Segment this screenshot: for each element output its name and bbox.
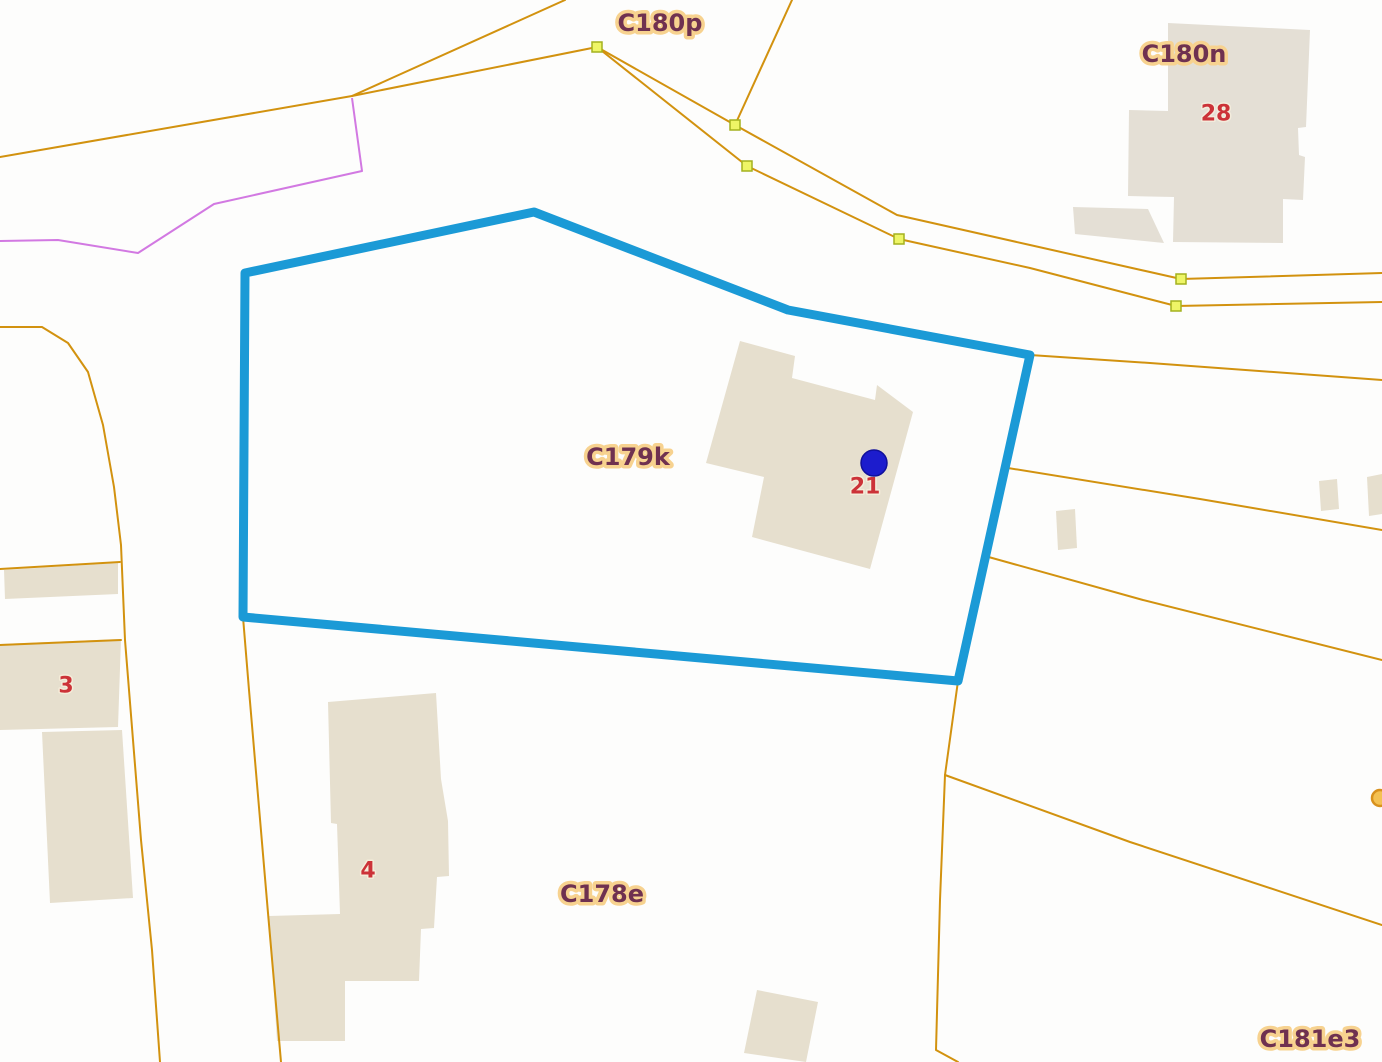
vertex-marker xyxy=(894,234,904,244)
building-footprint xyxy=(1319,479,1339,511)
parcel-label: C180p xyxy=(618,9,703,37)
selected-point-marker[interactable] xyxy=(861,450,887,476)
parcel-label: C181e3 xyxy=(1260,1025,1361,1053)
vertex-marker xyxy=(742,161,752,171)
building-number: 4 xyxy=(360,859,375,884)
building-number: 3 xyxy=(58,674,73,699)
vertex-marker xyxy=(1171,301,1181,311)
parcel-label: C178e xyxy=(560,880,644,908)
cadastral-map-viewport[interactable]: C180pC180nC179kC178eC181e3282134 xyxy=(0,0,1382,1062)
cadastral-map[interactable]: C180pC180nC179kC178eC181e3282134 xyxy=(0,0,1382,1062)
vertex-marker xyxy=(592,42,602,52)
vertex-marker xyxy=(1176,274,1186,284)
parcel-label: C179k xyxy=(586,443,671,471)
boundary-point-marker xyxy=(1372,790,1382,806)
building-number: 21 xyxy=(850,475,881,500)
parcel-label: C180n xyxy=(1142,40,1227,68)
building-footprint xyxy=(42,730,133,903)
vertex-marker xyxy=(730,120,740,130)
building-footprint xyxy=(1367,474,1382,516)
building-footprint xyxy=(744,990,818,1062)
building-footprint xyxy=(1056,509,1077,550)
building-number: 28 xyxy=(1201,102,1232,127)
